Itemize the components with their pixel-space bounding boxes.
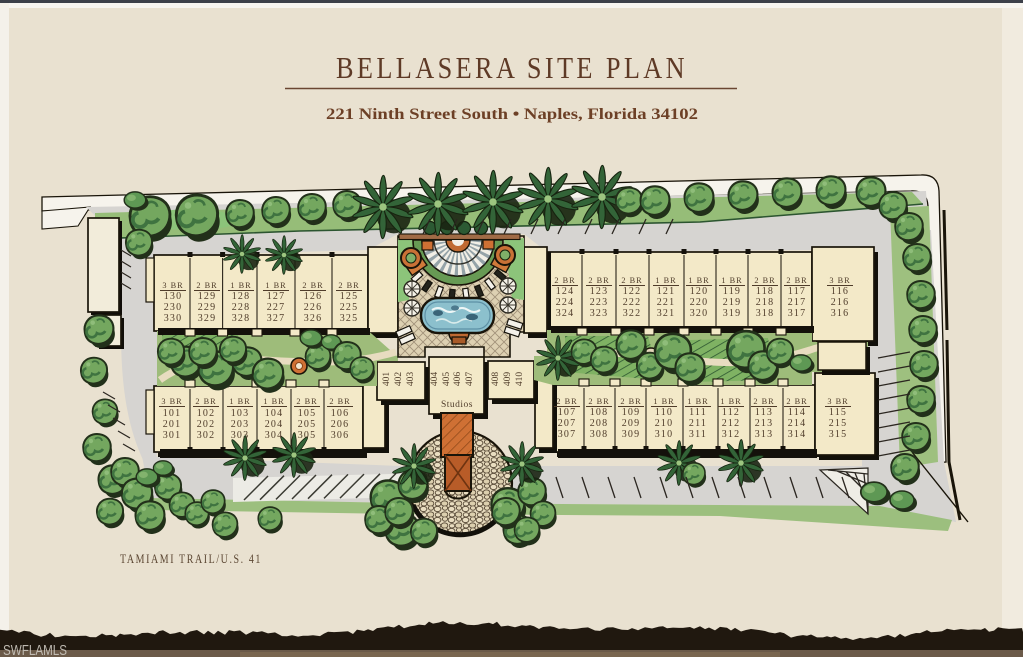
svg-text:Studios: Studios (441, 400, 473, 410)
svg-text:126: 126 (304, 291, 323, 302)
svg-text:2 BR: 2 BR (196, 281, 217, 290)
svg-text:SWFLAMLS: SWFLAMLS (3, 643, 67, 657)
svg-text:311: 311 (689, 429, 707, 440)
svg-text:105: 105 (298, 408, 317, 419)
svg-text:118: 118 (756, 286, 774, 297)
svg-text:225: 225 (340, 302, 359, 313)
svg-text:2 BR: 2 BR (554, 276, 575, 285)
svg-text:103: 103 (231, 408, 250, 419)
svg-text:123: 123 (590, 286, 609, 297)
svg-text:406: 406 (453, 372, 463, 387)
svg-text:2 BR: 2 BR (329, 397, 350, 406)
svg-text:217: 217 (788, 297, 807, 308)
svg-text:405: 405 (442, 372, 452, 387)
svg-text:213: 213 (755, 418, 774, 429)
svg-text:221: 221 (657, 297, 676, 308)
svg-text:108: 108 (590, 407, 609, 418)
svg-text:209: 209 (622, 418, 641, 429)
svg-text:2 BR: 2 BR (786, 397, 807, 406)
svg-text:2 BR: 2 BR (302, 281, 323, 290)
svg-text:402: 402 (394, 372, 404, 387)
svg-text:107: 107 (558, 407, 577, 418)
svg-text:222: 222 (623, 297, 642, 308)
svg-text:2 BR: 2 BR (753, 397, 774, 406)
svg-text:1 BR: 1 BR (230, 281, 251, 290)
svg-text:1 BR: 1 BR (720, 397, 741, 406)
svg-text:125: 125 (340, 291, 359, 302)
svg-text:228: 228 (232, 302, 251, 313)
svg-text:1 BR: 1 BR (229, 397, 250, 406)
svg-text:320: 320 (690, 308, 709, 319)
svg-text:201: 201 (163, 419, 182, 430)
svg-text:1 BR: 1 BR (263, 397, 284, 406)
svg-text:124: 124 (556, 286, 575, 297)
svg-text:223: 223 (590, 297, 609, 308)
svg-text:3 BR: 3 BR (827, 397, 848, 406)
svg-text:403: 403 (406, 372, 416, 387)
svg-text:2 BR: 2 BR (588, 397, 609, 406)
svg-text:409: 409 (503, 372, 513, 387)
svg-text:BELLASERA SITE PLAN: BELLASERA SITE PLAN (336, 50, 688, 85)
svg-text:204: 204 (265, 419, 284, 430)
svg-text:307: 307 (558, 429, 577, 440)
svg-text:304: 304 (265, 430, 284, 441)
svg-text:322: 322 (623, 308, 642, 319)
svg-text:329: 329 (198, 313, 217, 324)
svg-text:401: 401 (382, 372, 392, 387)
svg-text:120: 120 (690, 286, 709, 297)
svg-text:227: 227 (267, 302, 286, 313)
svg-text:2 BR: 2 BR (786, 276, 807, 285)
svg-text:230: 230 (164, 302, 183, 313)
svg-text:207: 207 (558, 418, 577, 429)
svg-text:407: 407 (465, 372, 475, 387)
svg-text:326: 326 (304, 313, 323, 324)
svg-text:102: 102 (197, 408, 216, 419)
svg-text:119: 119 (723, 286, 741, 297)
svg-text:2 BR: 2 BR (620, 397, 641, 406)
svg-text:214: 214 (788, 418, 807, 429)
svg-text:317: 317 (788, 308, 807, 319)
svg-text:113: 113 (755, 407, 773, 418)
svg-text:215: 215 (829, 418, 848, 429)
svg-text:101: 101 (163, 408, 182, 419)
svg-text:3 BR: 3 BR (829, 276, 850, 285)
svg-text:305: 305 (298, 430, 317, 441)
svg-text:128: 128 (232, 291, 251, 302)
svg-text:130: 130 (164, 291, 183, 302)
svg-text:302: 302 (197, 430, 216, 441)
svg-text:226: 226 (304, 302, 323, 313)
svg-text:2 BR: 2 BR (588, 276, 609, 285)
svg-text:1 BR: 1 BR (721, 276, 742, 285)
svg-text:229: 229 (198, 302, 217, 313)
svg-text:327: 327 (267, 313, 286, 324)
svg-text:203: 203 (231, 419, 250, 430)
svg-text:109: 109 (622, 407, 641, 418)
svg-text:303: 303 (231, 430, 250, 441)
svg-text:221 Ninth Street South •: 221 Ninth Street South • Naples, Florida… (326, 106, 698, 123)
svg-text:330: 330 (164, 313, 183, 324)
svg-text:309: 309 (622, 429, 641, 440)
svg-text:306: 306 (331, 430, 350, 441)
svg-text:115: 115 (829, 407, 847, 418)
svg-text:210: 210 (655, 418, 674, 429)
svg-text:117: 117 (788, 286, 806, 297)
svg-text:314: 314 (788, 429, 807, 440)
svg-text:410: 410 (515, 372, 525, 387)
svg-text:3 BR: 3 BR (162, 281, 183, 290)
svg-text:121: 121 (657, 286, 676, 297)
svg-text:2 BR: 2 BR (296, 397, 317, 406)
svg-text:404: 404 (430, 372, 440, 387)
svg-text:3 BR: 3 BR (161, 397, 182, 406)
svg-text:104: 104 (265, 408, 284, 419)
svg-text:310: 310 (655, 429, 674, 440)
svg-text:116: 116 (831, 286, 849, 297)
svg-text:313: 313 (755, 429, 774, 440)
svg-text:318: 318 (756, 308, 775, 319)
svg-text:212: 212 (722, 418, 741, 429)
svg-text:301: 301 (163, 430, 182, 441)
svg-text:319: 319 (723, 308, 742, 319)
svg-text:111: 111 (689, 407, 707, 418)
svg-text:106: 106 (331, 408, 350, 419)
svg-text:2 BR: 2 BR (621, 276, 642, 285)
svg-text:129: 129 (198, 291, 217, 302)
svg-text:211: 211 (689, 418, 707, 429)
svg-text:127: 127 (267, 291, 286, 302)
svg-text:122: 122 (623, 286, 642, 297)
svg-text:206: 206 (331, 419, 350, 430)
svg-text:110: 110 (655, 407, 673, 418)
svg-text:202: 202 (197, 419, 216, 430)
svg-text:208: 208 (590, 418, 609, 429)
svg-text:323: 323 (590, 308, 609, 319)
svg-text:315: 315 (829, 429, 848, 440)
svg-text:220: 220 (690, 297, 709, 308)
svg-text:216: 216 (831, 297, 850, 308)
svg-text:205: 205 (298, 419, 317, 430)
svg-text:2 BR: 2 BR (195, 397, 216, 406)
svg-text:408: 408 (491, 372, 501, 387)
svg-text:1 BR: 1 BR (265, 281, 286, 290)
svg-text:TAMIAMI TRAIL/U.S. 41: TAMIAMI TRAIL/U.S. 41 (120, 552, 262, 566)
svg-text:1 BR: 1 BR (653, 397, 674, 406)
svg-text:2 BR: 2 BR (556, 397, 577, 406)
svg-text:312: 312 (722, 429, 741, 440)
svg-text:328: 328 (232, 313, 251, 324)
svg-text:325: 325 (340, 313, 359, 324)
svg-text:1 BR: 1 BR (687, 397, 708, 406)
svg-text:1 BR: 1 BR (655, 276, 676, 285)
svg-text:1 BR: 1 BR (688, 276, 709, 285)
svg-text:112: 112 (722, 407, 740, 418)
svg-text:316: 316 (831, 308, 850, 319)
svg-text:324: 324 (556, 308, 575, 319)
svg-text:308: 308 (590, 429, 609, 440)
svg-text:321: 321 (657, 308, 676, 319)
svg-text:2 BR: 2 BR (754, 276, 775, 285)
svg-text:114: 114 (788, 407, 806, 418)
svg-text:224: 224 (556, 297, 575, 308)
svg-text:219: 219 (723, 297, 742, 308)
svg-text:218: 218 (756, 297, 775, 308)
svg-text:2 BR: 2 BR (338, 281, 359, 290)
